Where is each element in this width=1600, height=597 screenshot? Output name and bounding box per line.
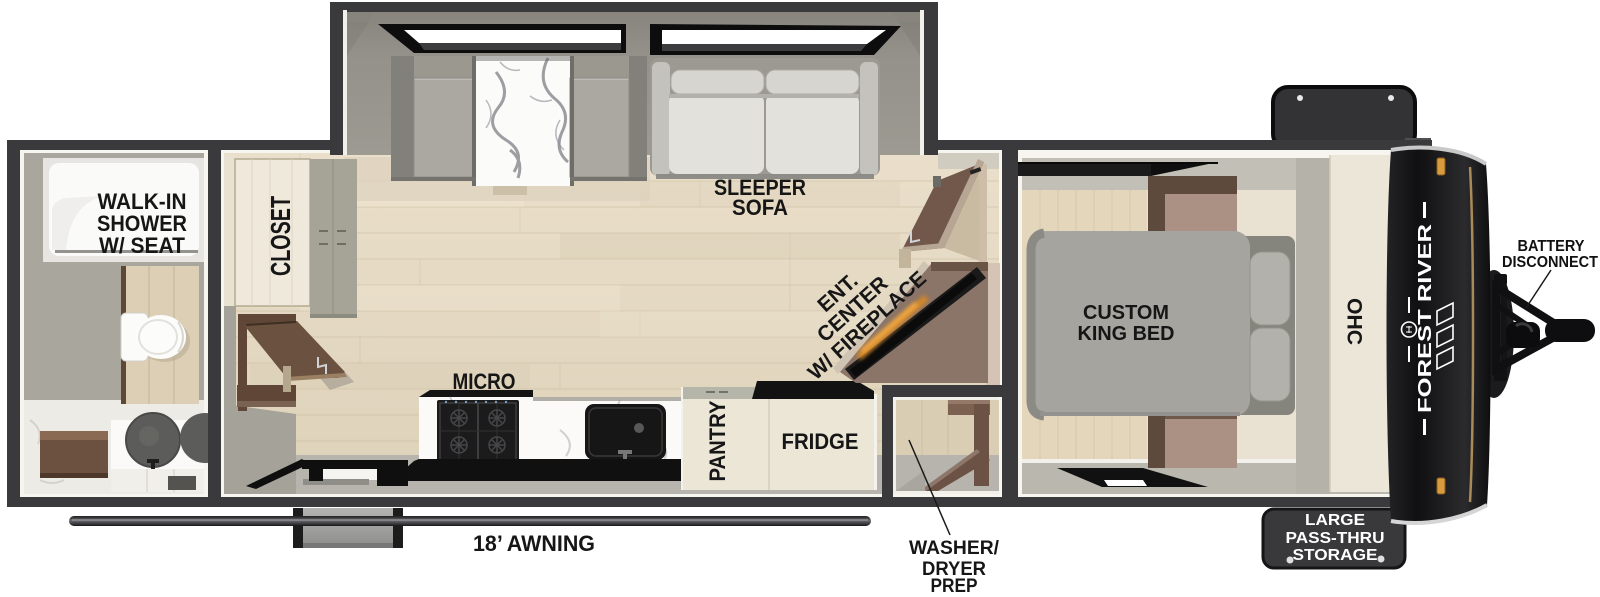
svg-text:KING BED: KING BED <box>1078 323 1175 345</box>
svg-text:BATTERY: BATTERY <box>1518 238 1586 255</box>
svg-text:MICRO: MICRO <box>453 369 516 394</box>
svg-text:PASS-THRU: PASS-THRU <box>1286 530 1385 547</box>
svg-text:PREP: PREP <box>931 576 978 592</box>
svg-text:CLOSET: CLOSET <box>265 196 296 276</box>
svg-text:SOFA: SOFA <box>732 195 788 220</box>
svg-text:W/ SEAT: W/ SEAT <box>99 233 186 258</box>
svg-text:PANTRY: PANTRY <box>705 400 730 481</box>
svg-text:WASHER/: WASHER/ <box>909 538 1000 559</box>
svg-text:OHC: OHC <box>1343 298 1367 345</box>
svg-text:DISCONNECT: DISCONNECT <box>1502 254 1598 271</box>
svg-text:CUSTOM: CUSTOM <box>1083 302 1169 324</box>
svg-text:LARGE: LARGE <box>1305 512 1365 529</box>
svg-text:FOREST RIVER: FOREST RIVER <box>1414 224 1435 413</box>
svg-text:FRIDGE: FRIDGE <box>782 429 859 454</box>
svg-text:18’ AWNING: 18’ AWNING <box>473 531 595 556</box>
svg-text:STORAGE: STORAGE <box>1293 547 1378 564</box>
